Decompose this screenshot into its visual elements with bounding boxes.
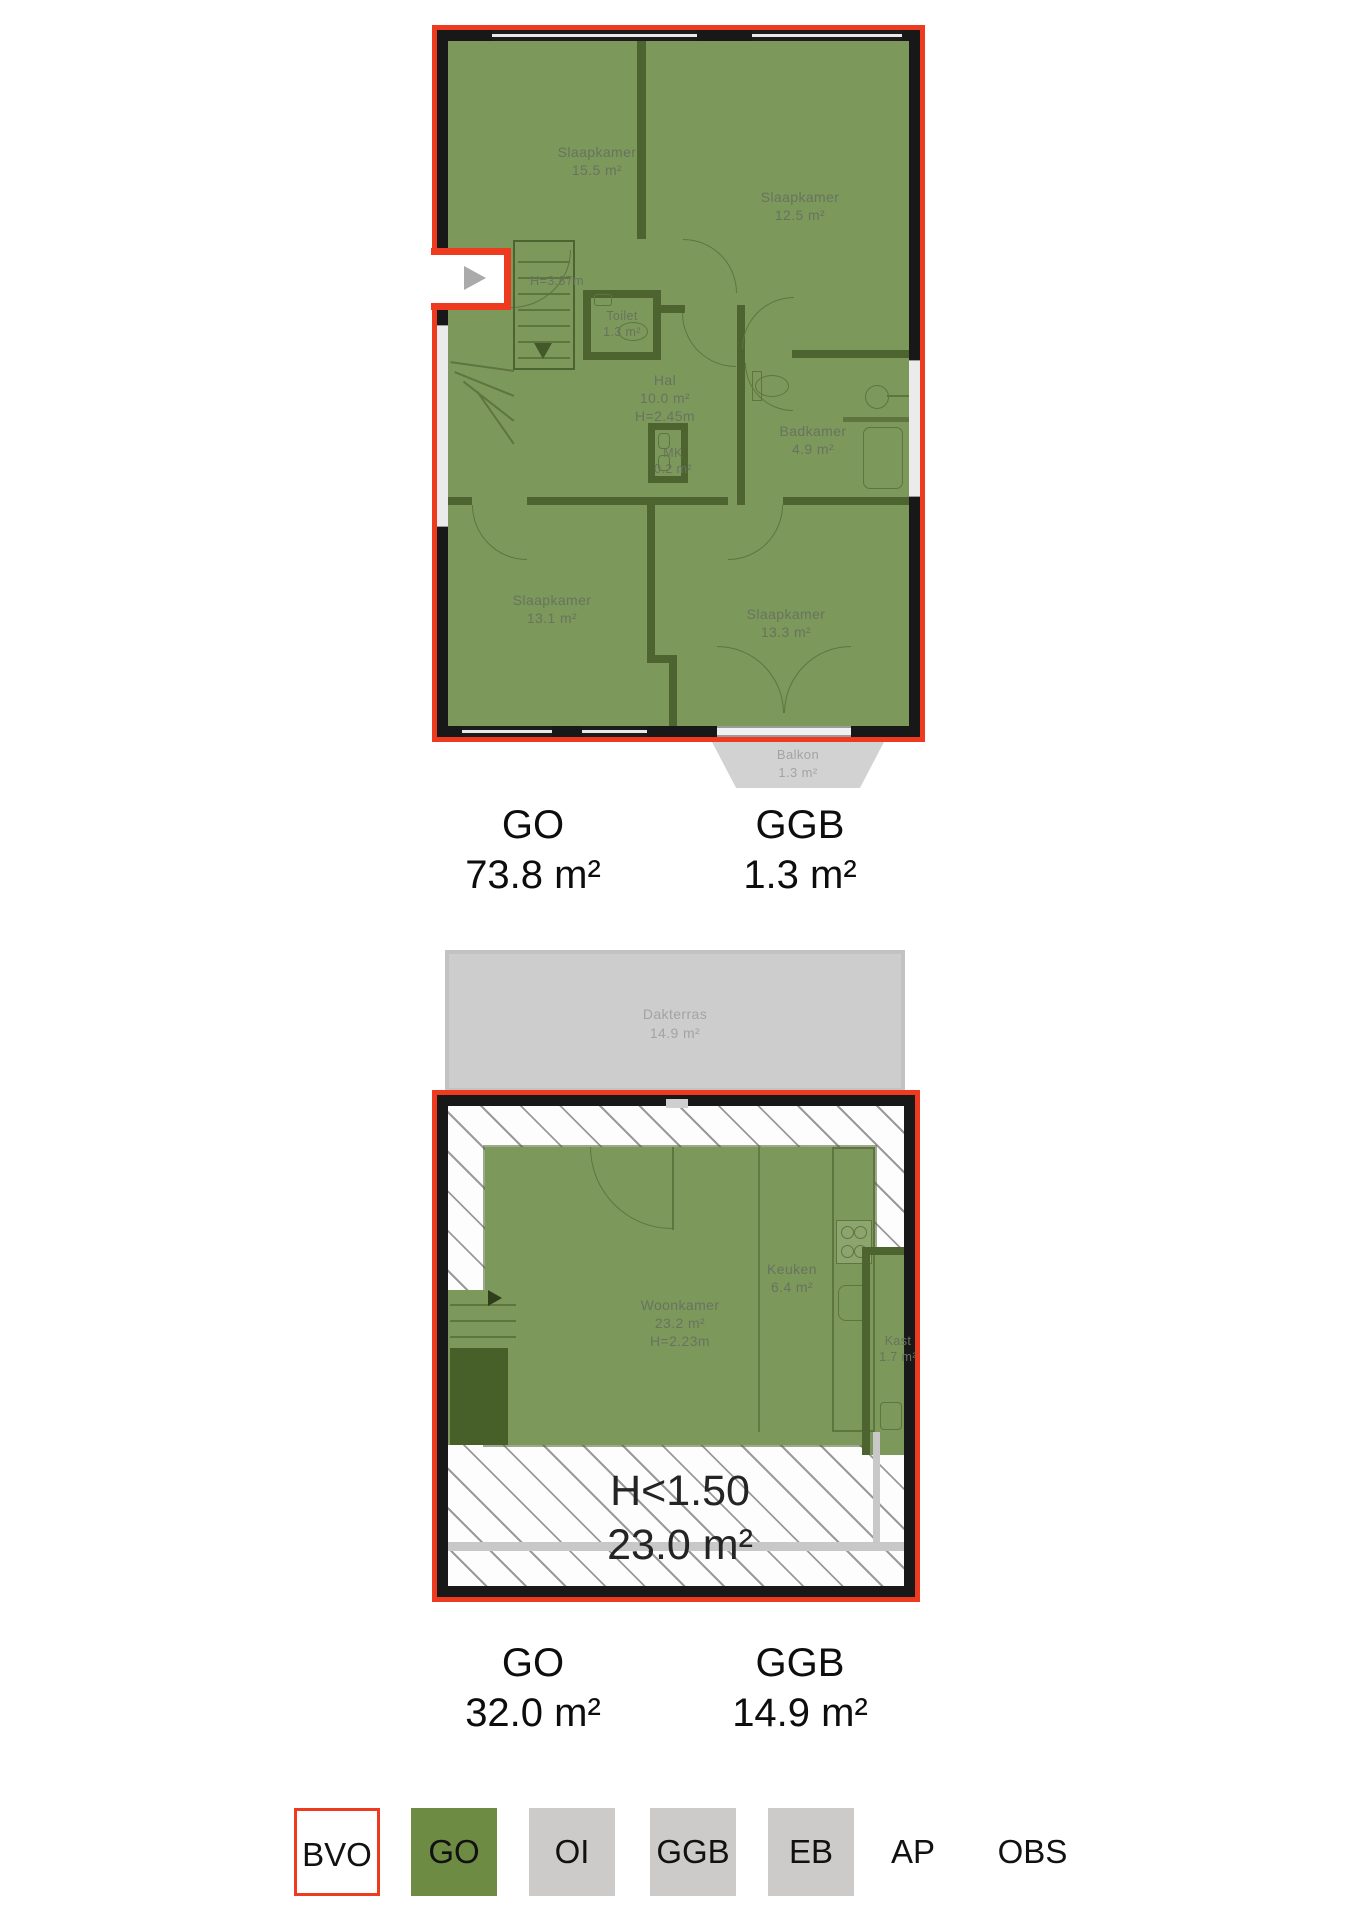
room-name: Slaapkamer — [472, 591, 632, 609]
room-name: Slaapkamer — [517, 143, 677, 161]
room-name: MK — [642, 445, 704, 461]
wall — [448, 497, 472, 505]
room-area: 1.7 m² — [863, 1349, 933, 1365]
wall — [669, 663, 677, 726]
ggb-label: GGB — [700, 800, 900, 850]
room-label-keuken: Keuken 6.4 m² — [732, 1260, 852, 1296]
ggb-label: GGB — [700, 1638, 900, 1688]
window — [582, 726, 647, 737]
window — [752, 30, 902, 41]
lower-go-total: GO 32.0 m² — [433, 1638, 633, 1738]
room-name: Balkon — [712, 746, 884, 764]
lower-floor-plan: Woonkamer 23.2 m² H=2.23m Keuken 6.4 m² … — [432, 1090, 920, 1602]
ggb-value: 1.3 m² — [700, 850, 900, 900]
room-name: Toilet — [582, 308, 662, 324]
legend-item-bvo: BVO — [294, 1808, 380, 1896]
window — [492, 30, 697, 41]
go-label: GO — [433, 800, 633, 850]
room-label-mk: MK 0.2 m² — [642, 445, 704, 478]
wall — [527, 497, 728, 505]
terrace-edge-line — [873, 1432, 880, 1551]
wall — [647, 505, 655, 655]
room-label-slaapkamer-3: Slaapkamer 13.1 m² — [472, 591, 632, 627]
go-value: 32.0 m² — [433, 1688, 633, 1738]
room-ceiling-height: H=2.45m — [605, 407, 725, 425]
lower-ggb-total: GGB 14.9 m² — [700, 1638, 900, 1738]
room-name: Badkamer — [753, 422, 873, 440]
legend-item-eb: EB — [768, 1808, 854, 1896]
room-label-badkamer: Badkamer 4.9 m² — [753, 422, 873, 458]
wall — [792, 350, 909, 358]
upper-ggb-total: GGB 1.3 m² — [700, 800, 900, 900]
room-ceiling-height: H=2.23m — [600, 1332, 760, 1350]
low-headroom-label: H<1.50 23.0 m² — [530, 1465, 830, 1573]
room-label-hal: Hal 10.0 m² H=2.45m — [605, 371, 725, 426]
room-area: 1.3 m² — [582, 324, 662, 340]
legend-item-oi: OI — [529, 1808, 615, 1896]
height-text: H=3.87m — [512, 273, 602, 289]
room-label-kast: Kast 1.7 m² — [863, 1333, 933, 1366]
room-area: 14.9 m² — [445, 1024, 905, 1043]
room-name: Slaapkamer — [706, 605, 866, 623]
floorplan-page: Slaapkamer 15.5 m² Slaapkamer 12.5 m² To… — [0, 0, 1358, 1920]
room-name: Keuken — [732, 1260, 852, 1278]
legend-item-ap: AP — [868, 1808, 958, 1896]
window — [437, 325, 448, 527]
room-name: Kast — [863, 1333, 933, 1349]
faucet-icon — [887, 395, 909, 397]
room-area: 15.5 m² — [517, 161, 677, 179]
legend-item-go: GO — [411, 1808, 497, 1896]
door-leaf — [672, 1147, 674, 1230]
window — [909, 360, 920, 497]
sink-icon — [865, 385, 889, 409]
room-label-slaapkamer-1: Slaapkamer 15.5 m² — [517, 143, 677, 179]
room-name: Slaapkamer — [720, 188, 880, 206]
window — [462, 726, 552, 737]
stairs-down-arrow-icon — [534, 343, 552, 359]
room-area: 12.5 m² — [720, 206, 880, 224]
room-area: 1.3 m² — [712, 764, 884, 782]
balcony-door-threshold — [717, 726, 851, 737]
room-area: 13.3 m² — [706, 623, 866, 641]
wall — [661, 305, 685, 313]
wall — [637, 41, 646, 239]
upper-floor-plan: Slaapkamer 15.5 m² Slaapkamer 12.5 m² To… — [432, 25, 925, 742]
stairs-up-arrow-icon — [488, 1290, 502, 1306]
upper-go-total: GO 73.8 m² — [433, 800, 633, 900]
room-area: 0.2 m² — [642, 461, 704, 477]
wall — [647, 655, 677, 663]
stairs — [450, 1290, 516, 1352]
room-label-woonkamer: Woonkamer 23.2 m² H=2.23m — [600, 1296, 760, 1351]
boiler-icon — [880, 1402, 902, 1430]
room-name: Hal — [605, 371, 725, 389]
stairs-lower-flight — [450, 1348, 508, 1445]
entry-height-annotation: H=3.87m — [512, 273, 602, 289]
go-value: 73.8 m² — [433, 850, 633, 900]
room-label-slaapkamer-4: Slaapkamer 13.3 m² — [706, 605, 866, 641]
room-area: 23.2 m² — [600, 1314, 760, 1332]
room-name: Woonkamer — [600, 1296, 760, 1314]
low-headroom-height: H<1.50 — [530, 1465, 830, 1519]
room-area: 13.1 m² — [472, 609, 632, 627]
room-label-slaapkamer-2: Slaapkamer 12.5 m² — [720, 188, 880, 224]
room-area: 10.0 m² — [605, 389, 725, 407]
terrace-door-threshold — [666, 1099, 688, 1108]
room-label-toilet: Toilet 1.3 m² — [582, 308, 662, 341]
go-label: GO — [433, 1638, 633, 1688]
room-label-balkon: Balkon 1.3 m² — [712, 746, 884, 781]
room-name: Dakterras — [445, 1005, 905, 1024]
entrance-arrow-icon — [464, 266, 486, 290]
legend-item-ggb: GGB — [650, 1808, 736, 1896]
room-area: 4.9 m² — [753, 440, 873, 458]
wall — [783, 497, 909, 505]
room-label-dakterras: Dakterras 14.9 m² — [445, 1005, 905, 1043]
legend-item-obs: OBS — [985, 1808, 1080, 1896]
toilet-tank-icon — [752, 371, 762, 401]
toilet-sink-icon — [594, 294, 612, 306]
room-area: 6.4 m² — [732, 1278, 852, 1296]
wall — [862, 1247, 904, 1255]
low-headroom-area: 23.0 m² — [530, 1519, 830, 1573]
ggb-value: 14.9 m² — [700, 1688, 900, 1738]
